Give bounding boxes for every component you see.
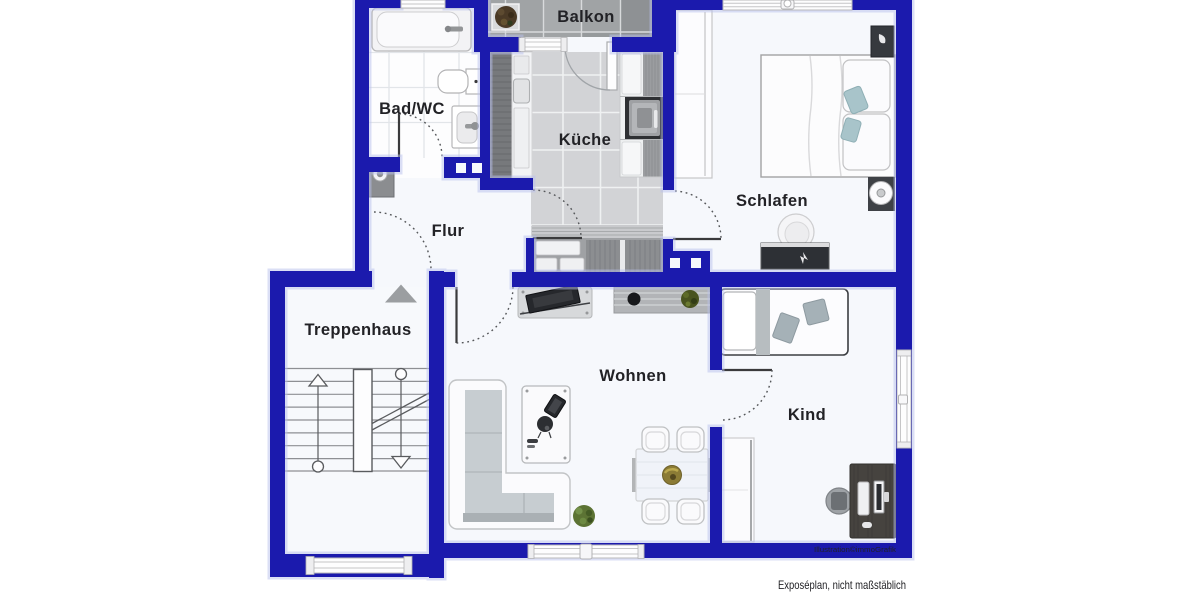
svg-text:Balkon: Balkon <box>557 8 614 26</box>
svg-text:Wohnen: Wohnen <box>599 367 666 385</box>
svg-text:Küche: Küche <box>559 131 611 149</box>
svg-text:Bad/WC: Bad/WC <box>379 100 445 118</box>
svg-text:Schlafen: Schlafen <box>736 192 808 210</box>
svg-text:Flur: Flur <box>432 222 465 240</box>
svg-text:Kind: Kind <box>788 406 826 424</box>
svg-text:Exposéplan, nicht maßstäblich: Exposéplan, nicht maßstäblich <box>778 578 906 592</box>
svg-text:Illustration©immoGrafik: Illustration©immoGrafik <box>814 545 896 554</box>
svg-text:Treppenhaus: Treppenhaus <box>304 321 411 339</box>
